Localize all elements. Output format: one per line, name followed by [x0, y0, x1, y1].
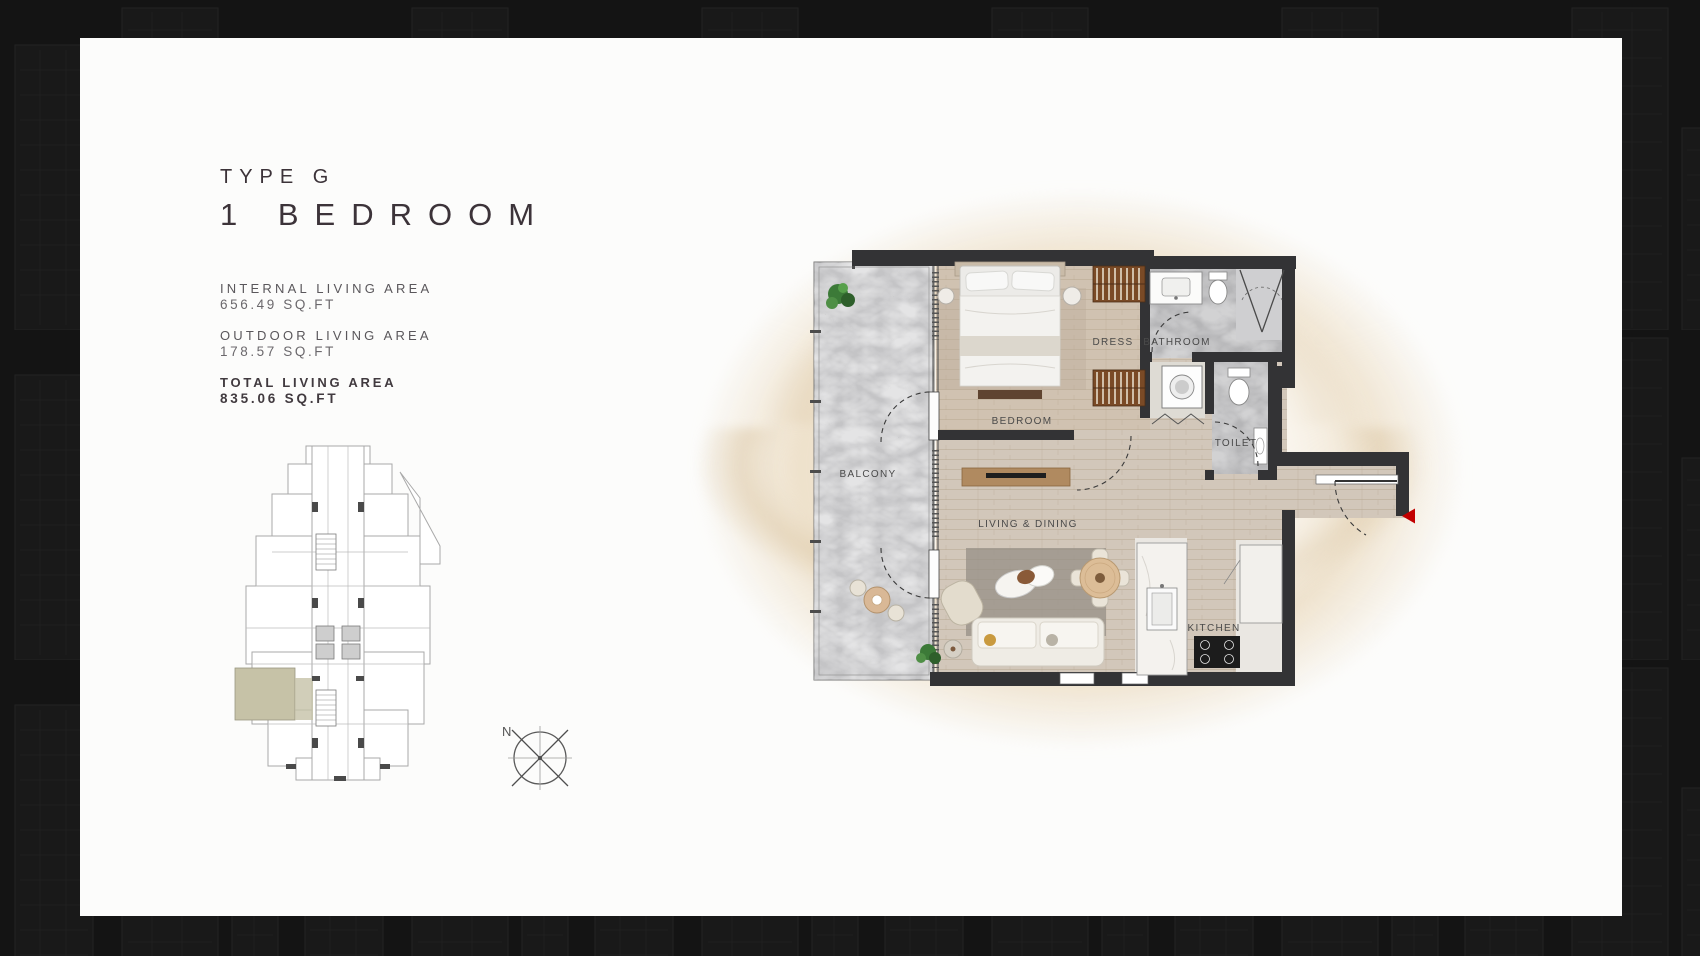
compass-north-label: N: [502, 724, 512, 739]
internal-area-block: INTERNAL LIVING AREA 656.49 SQ.FT: [220, 281, 550, 312]
kitchen-counter-right: [1240, 545, 1282, 623]
compass: N: [480, 718, 610, 828]
bed-throw: [960, 336, 1060, 356]
unit-type-label: TYPE G: [220, 166, 550, 189]
brochure-card: TYPE G 1 BEDROOM INTERNAL LIVING AREA 65…: [80, 38, 1622, 916]
sofa: [972, 618, 1104, 666]
total-area-label: TOTAL LIVING AREA: [220, 375, 550, 390]
total-area-value: 835.06 SQ.FT: [220, 391, 550, 406]
kitchen-island: [1137, 543, 1187, 675]
nightstand-right: [1063, 287, 1081, 305]
nightstand-left: [938, 288, 954, 304]
compass-center-dot: [538, 756, 542, 760]
internal-area-value: 656.49 SQ.FT: [220, 297, 550, 312]
building-key-plan: [216, 438, 448, 790]
sofa-pillow-yellow: [984, 634, 996, 646]
internal-area-label: INTERNAL LIVING AREA: [220, 281, 550, 296]
room-label-bathroom: BATHROOM: [1143, 337, 1210, 348]
outdoor-area-value: 178.57 SQ.FT: [220, 344, 550, 359]
room-label-dress: DRESS: [1093, 337, 1134, 348]
tv: [986, 473, 1046, 478]
stove: [1194, 636, 1240, 668]
tv-console: [962, 468, 1070, 486]
room-label-balcony: BALCONY: [840, 469, 897, 480]
room-label-living-dining: LIVING & DINING: [978, 519, 1078, 530]
bed: [955, 262, 1065, 399]
highlighted-unit-tail: [295, 678, 313, 720]
balcony-door-panel-1: [929, 392, 939, 440]
bathroom-wc: [1209, 272, 1227, 304]
toilet-wc: [1228, 368, 1250, 405]
room-label-bedroom: BEDROOM: [992, 416, 1053, 427]
unit-info-panel: TYPE G 1 BEDROOM INTERNAL LIVING AREA 65…: [220, 166, 550, 422]
room-label-toilet: TOILET: [1215, 438, 1258, 449]
outdoor-area-block: OUTDOOR LIVING AREA 178.57 SQ.FT: [220, 328, 550, 359]
bed-bench: [978, 390, 1042, 399]
room-label-kitchen: KITCHEN: [1188, 623, 1241, 634]
balcony-door-panel-2: [929, 550, 939, 598]
washing-machine: [1162, 366, 1202, 408]
sofa-side-table: [944, 640, 962, 658]
apartment-floor-plan: BALCONY BEDROOM DRESS BATHROOM TOILET LI…: [798, 243, 1426, 701]
sofa-pillow-gray: [1046, 634, 1058, 646]
bathroom-vanity: [1150, 272, 1202, 304]
highlighted-unit-area: [235, 668, 295, 720]
keyplan-floorplate-outline: [246, 446, 440, 780]
total-area-block: TOTAL LIVING AREA 835.06 SQ.FT: [220, 375, 550, 406]
page-title: 1 BEDROOM: [220, 197, 550, 233]
outdoor-area-label: OUTDOOR LIVING AREA: [220, 328, 550, 343]
entry-hall-floor: [1287, 466, 1408, 518]
